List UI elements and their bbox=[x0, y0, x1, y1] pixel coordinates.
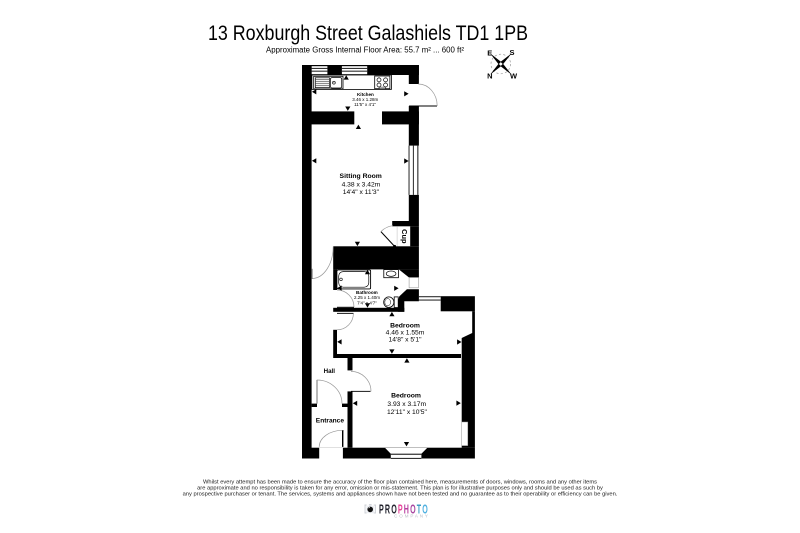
svg-text:W: W bbox=[510, 71, 518, 80]
svg-text:4.46 x 1.55m: 4.46 x 1.55m bbox=[386, 330, 425, 337]
svg-text:Sitting Room: Sitting Room bbox=[340, 173, 382, 180]
svg-text:are approximate and no respons: are approximate and no responsibility is… bbox=[197, 486, 603, 492]
svg-text:12'11" x 10'5": 12'11" x 10'5" bbox=[387, 409, 428, 416]
svg-text:any prospective purchaser or t: any prospective purchaser or tenant. The… bbox=[183, 492, 618, 498]
svg-text:4.38 x 3.42m: 4.38 x 3.42m bbox=[342, 182, 381, 189]
svg-text:3.93 x 3.17m: 3.93 x 3.17m bbox=[387, 401, 426, 408]
svg-text:Entrance: Entrance bbox=[316, 418, 345, 425]
svg-text:Bathroom: Bathroom bbox=[356, 290, 378, 295]
svg-text:Approximate Gross Internal Flo: Approximate Gross Internal Floor Area: 5… bbox=[266, 45, 464, 54]
svg-text:Kitchen: Kitchen bbox=[357, 92, 374, 97]
svg-text:N: N bbox=[487, 72, 492, 81]
svg-text:Hall: Hall bbox=[324, 368, 336, 375]
svg-text:E: E bbox=[487, 48, 492, 57]
svg-text:14'4" x 11'3": 14'4" x 11'3" bbox=[343, 189, 380, 196]
svg-text:Bedroom: Bedroom bbox=[391, 393, 421, 400]
svg-text:R: R bbox=[385, 503, 391, 517]
svg-text:Whilst every attempt has been: Whilst every attempt has been made to en… bbox=[203, 479, 597, 485]
svg-text:Cup: Cup bbox=[400, 229, 409, 244]
svg-text:COMPANY: COMPANY bbox=[394, 513, 430, 518]
svg-text:14'8" x 5'1": 14'8" x 5'1" bbox=[389, 336, 423, 343]
svg-text:2.25 x 1.40m: 2.25 x 1.40m bbox=[354, 295, 380, 300]
svg-text:3.46 x 1.28m: 3.46 x 1.28m bbox=[352, 97, 378, 102]
svg-text:S: S bbox=[509, 48, 514, 57]
svg-text:13 Roxburgh Street Galashiels: 13 Roxburgh Street Galashiels TD1 1PB bbox=[208, 21, 528, 45]
svg-text:P: P bbox=[379, 503, 384, 517]
svg-text:Bedroom: Bedroom bbox=[390, 322, 420, 329]
svg-text:11'5" x 4'1": 11'5" x 4'1" bbox=[354, 102, 376, 107]
